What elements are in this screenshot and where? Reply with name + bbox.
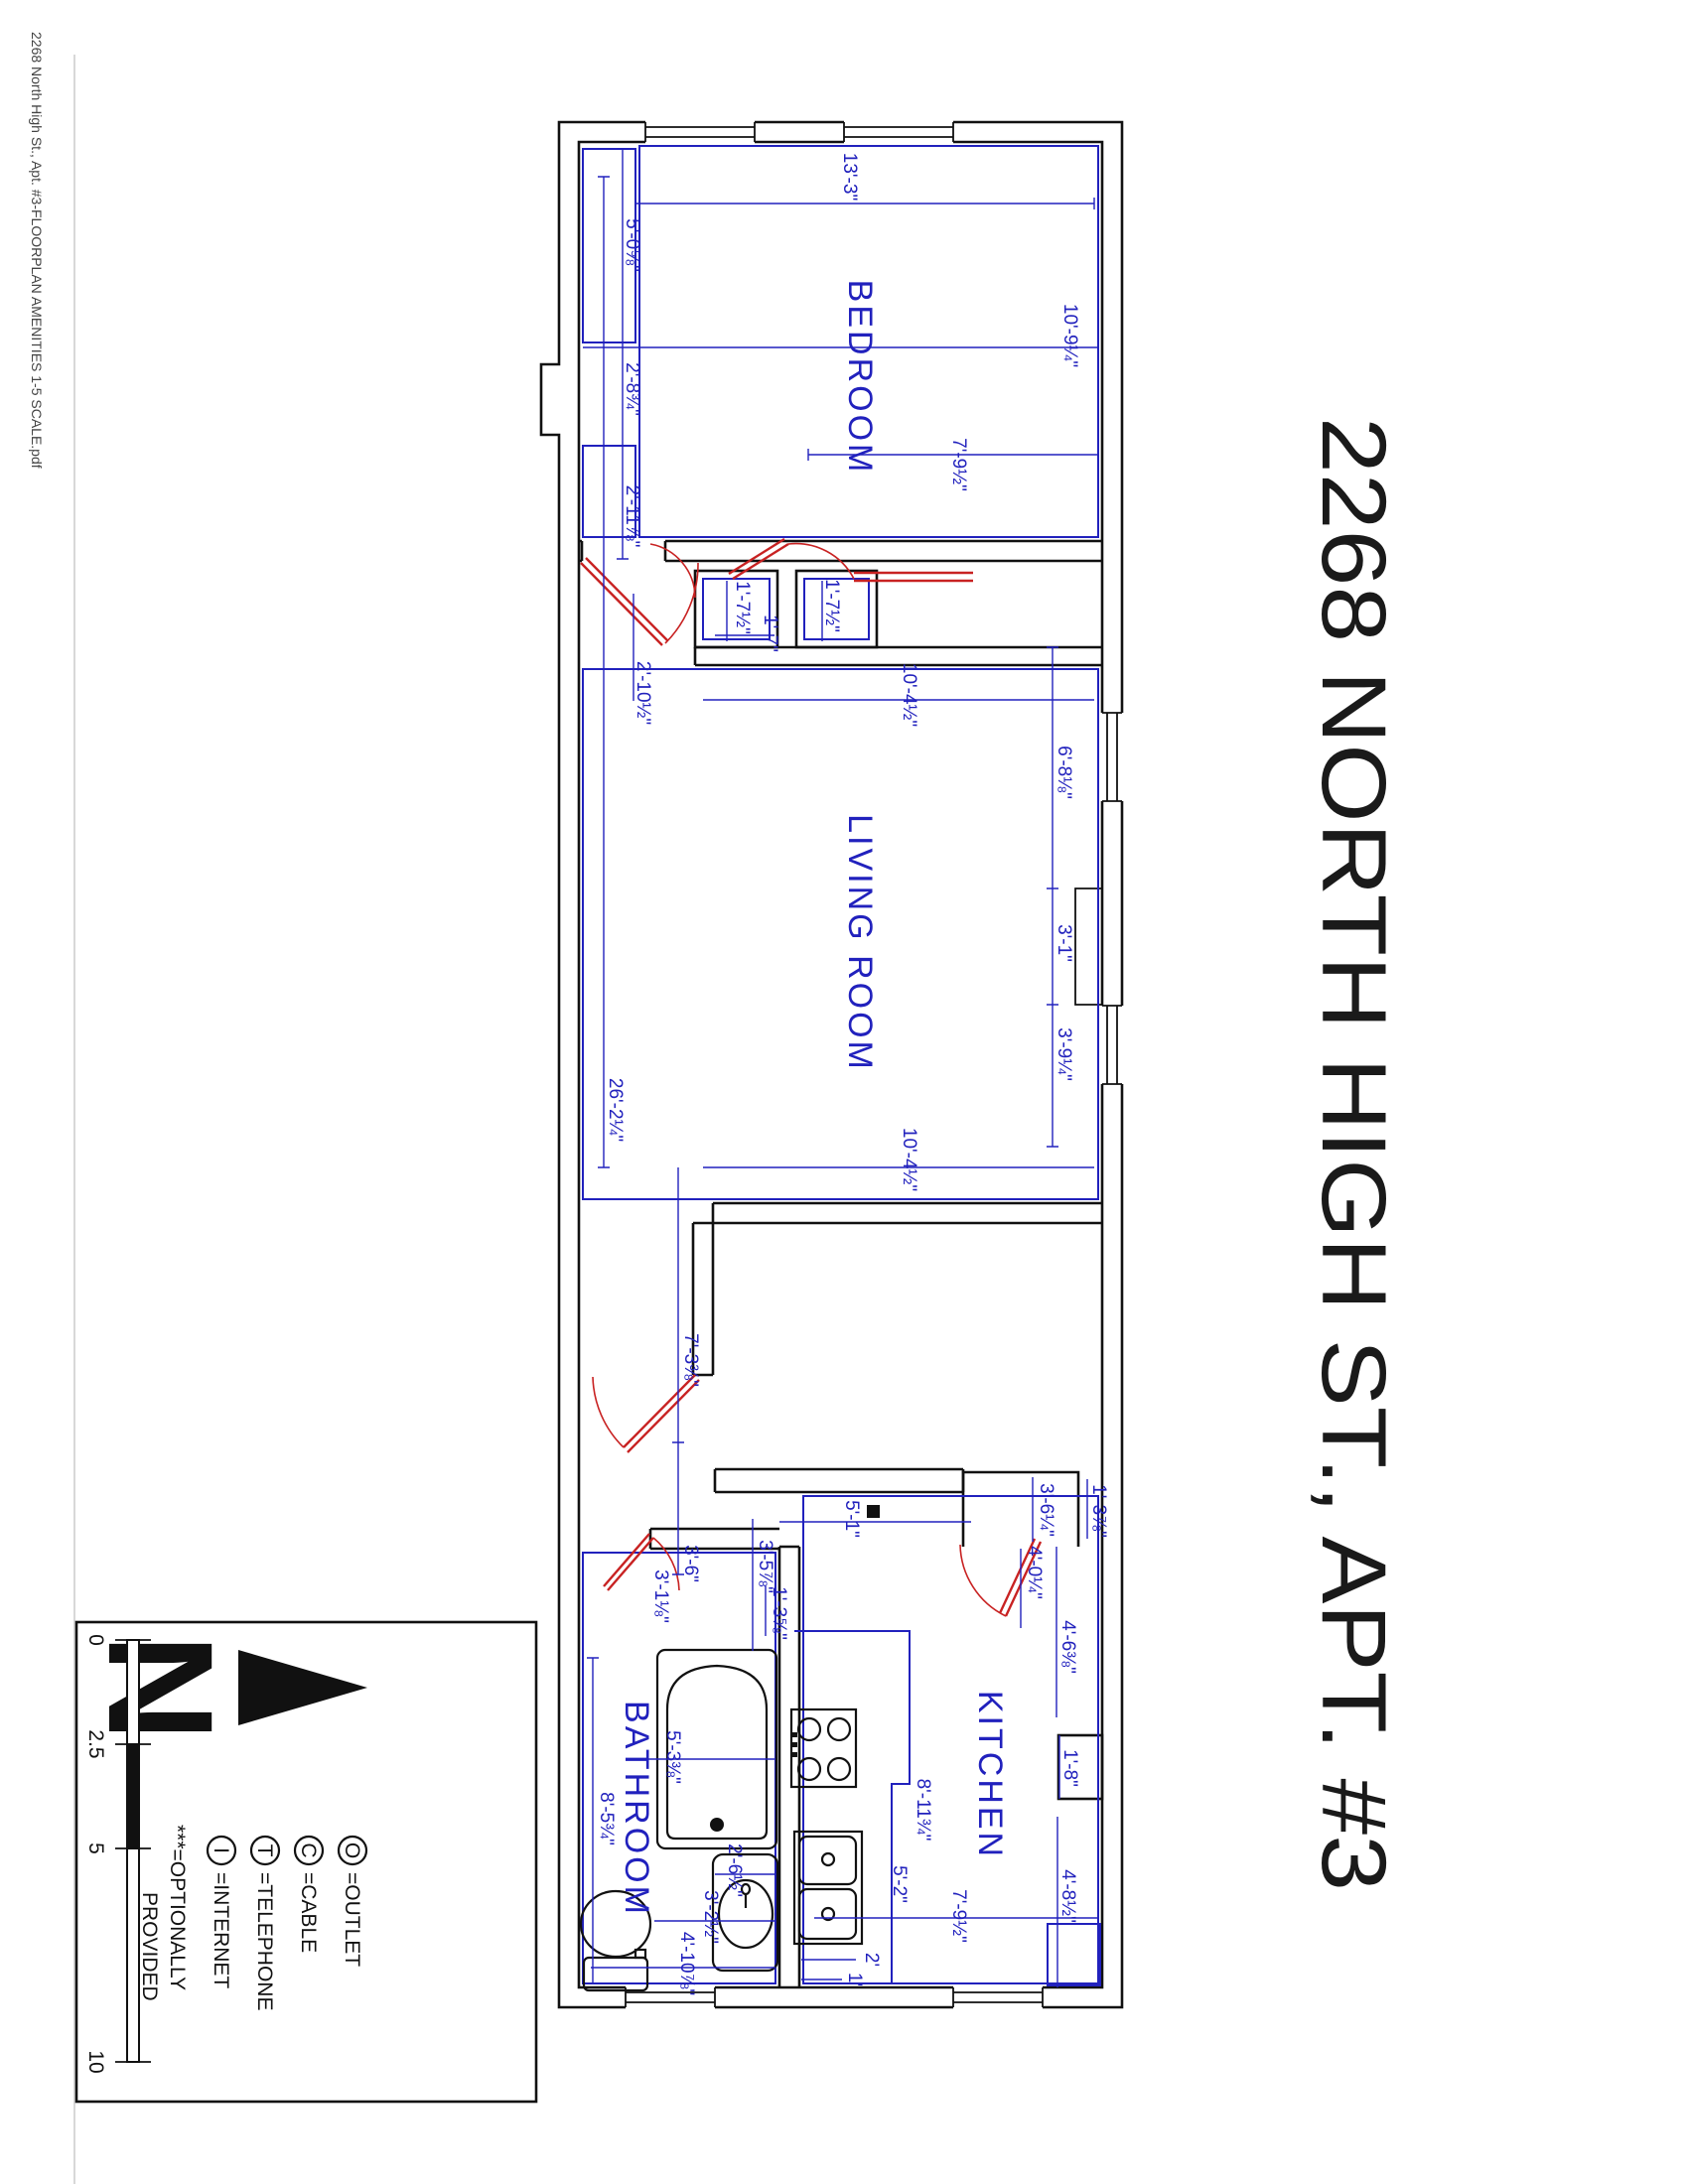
dimension-label: 10'-4½" (899, 1128, 919, 1191)
dimension-label: 3'-6" (680, 1545, 701, 1582)
dimension-label: 7'-9½" (948, 438, 969, 491)
dimension-label: 1'-7½" (732, 581, 753, 634)
bathroom-sink (713, 1854, 777, 1971)
dimension-label: 3'-1⅛" (650, 1570, 671, 1623)
legend-symbol: T (253, 1844, 276, 1857)
scale-label: 10 (84, 2050, 107, 2073)
legend-item-label: =CABLE (297, 1872, 320, 1953)
room-label-bathroom: BATHROOM (618, 1701, 655, 1917)
dimension-label: 10'-4½" (899, 663, 919, 727)
room-label-kitchen: KITCHEN (971, 1691, 1009, 1859)
stove (791, 1709, 856, 1787)
dimension-label: 10'-9¼" (1059, 304, 1080, 367)
dimension-label: 1'-7½" (821, 579, 842, 632)
dimension-label: 4'-10⅞" (676, 1932, 697, 1995)
dimension-label: 4'-8½" (1057, 1869, 1078, 1923)
dimension-label: 5'-2" (889, 1865, 910, 1903)
legend-item-label2: PROVIDED (138, 1892, 161, 2001)
dimension-label: 5'-3⅜" (662, 1730, 683, 1784)
closet-bypass-door (854, 573, 973, 581)
dimension-label: 1'-3⅝" (769, 1586, 789, 1640)
dimension-label: 26'-2¼" (605, 1078, 626, 1142)
dimension-label: 5'-0⅝" (622, 218, 642, 272)
north-arrow-icon: N (77, 1634, 367, 1741)
dimension-label: 5'-1" (841, 1500, 862, 1538)
north-label: N (77, 1634, 244, 1741)
dimension-label: 1'-7" (760, 614, 780, 652)
dimension-label: 8'-11¾" (913, 1779, 933, 1842)
dimension-label: 13'-3" (839, 153, 860, 201)
dimension-label: 7'-9½" (948, 1889, 969, 1943)
dimension-label: 4'-6⅜" (1057, 1620, 1078, 1674)
dimension-label: 2'-6½" (724, 1843, 745, 1897)
legend-symbol: C (297, 1843, 320, 1857)
pdf-page: 5'-0⅝"2'-8¾"2'-11⅞"13'-3"10'-9¼"1'-7½"1'… (0, 0, 1688, 2184)
dimension-label: 2'-8¾" (622, 362, 642, 416)
scale-label: 0 (84, 1634, 107, 1646)
legend-items: O=OUTLETC=CABLET=TELEPHONEI=INTERNET***=… (138, 1825, 366, 2010)
legend-item-label: =OUTLET (341, 1872, 363, 1967)
dimension-label: 1' (844, 1973, 865, 1986)
room-label-bedroom: BEDROOM (841, 280, 879, 476)
legend-item-label: =TELEPHONE (253, 1872, 276, 2010)
closet-door (729, 539, 854, 579)
dimension-label: 1'-8" (1059, 1749, 1080, 1787)
dimension-label: 6'-8⅛" (1054, 746, 1074, 799)
legend-symbol: O (341, 1843, 363, 1858)
sheet-title: 2268 NORTH HIGH ST., APT. #3 (1303, 417, 1404, 1891)
bedroom-door (581, 558, 698, 645)
dimension-label: 8'-5¾" (596, 1792, 617, 1845)
floorplan-svg: 5'-0⅝"2'-8¾"2'-11⅞"13'-3"10'-9¼"1'-7½"1'… (0, 0, 1688, 2184)
scale-label: 5 (84, 1843, 107, 1854)
dimension-label: 7'-3⅜" (680, 1333, 701, 1387)
pdf-filename: 2268 North High St., Apt. #3-FLOORPLAN A… (29, 32, 45, 469)
room-label-living-room: LIVING ROOM (841, 814, 879, 1072)
dimension-label: 2'-11⅞" (622, 485, 642, 548)
outlet-symbol (867, 1505, 880, 1518)
tub-drain (710, 1818, 724, 1832)
rotated-drawing-container: 5'-0⅝"2'-8¾"2'-11⅞"13'-3"10'-9¼"1'-7½"1'… (0, 0, 1688, 2184)
dimension-label: 2' (861, 1953, 882, 1967)
scale-label: 2.5 (84, 1729, 107, 1758)
hall-door (650, 544, 695, 598)
dimension-label: 1'-3⅞" (1088, 1484, 1109, 1538)
legend-symbol: I (210, 1847, 232, 1853)
legend-item-label: ***=OPTIONALLY (166, 1825, 189, 1990)
dimension-label: 3'-9¼" (1054, 1027, 1074, 1081)
dimension-label: 3'-5⅞" (755, 1540, 775, 1593)
legend-box: N 02.5510 O=OUTLETC=CABLET=TELEPHONEI=IN… (76, 1622, 536, 2102)
dimension-label: 4'-0¼" (1024, 1546, 1045, 1599)
dimension-label: 2'-10½" (633, 661, 653, 725)
dimension-label: 3'-1" (1054, 924, 1074, 962)
dimension-label: 3'-6¼" (1036, 1483, 1056, 1537)
room-labels: BEDROOMLIVING ROOMKITCHENBATHROOM (618, 280, 1009, 1917)
legend-item-label: =INTERNET (210, 1872, 232, 1988)
kitchen-sink (794, 1832, 862, 1944)
dimension-label: 3'-2½" (700, 1890, 721, 1944)
